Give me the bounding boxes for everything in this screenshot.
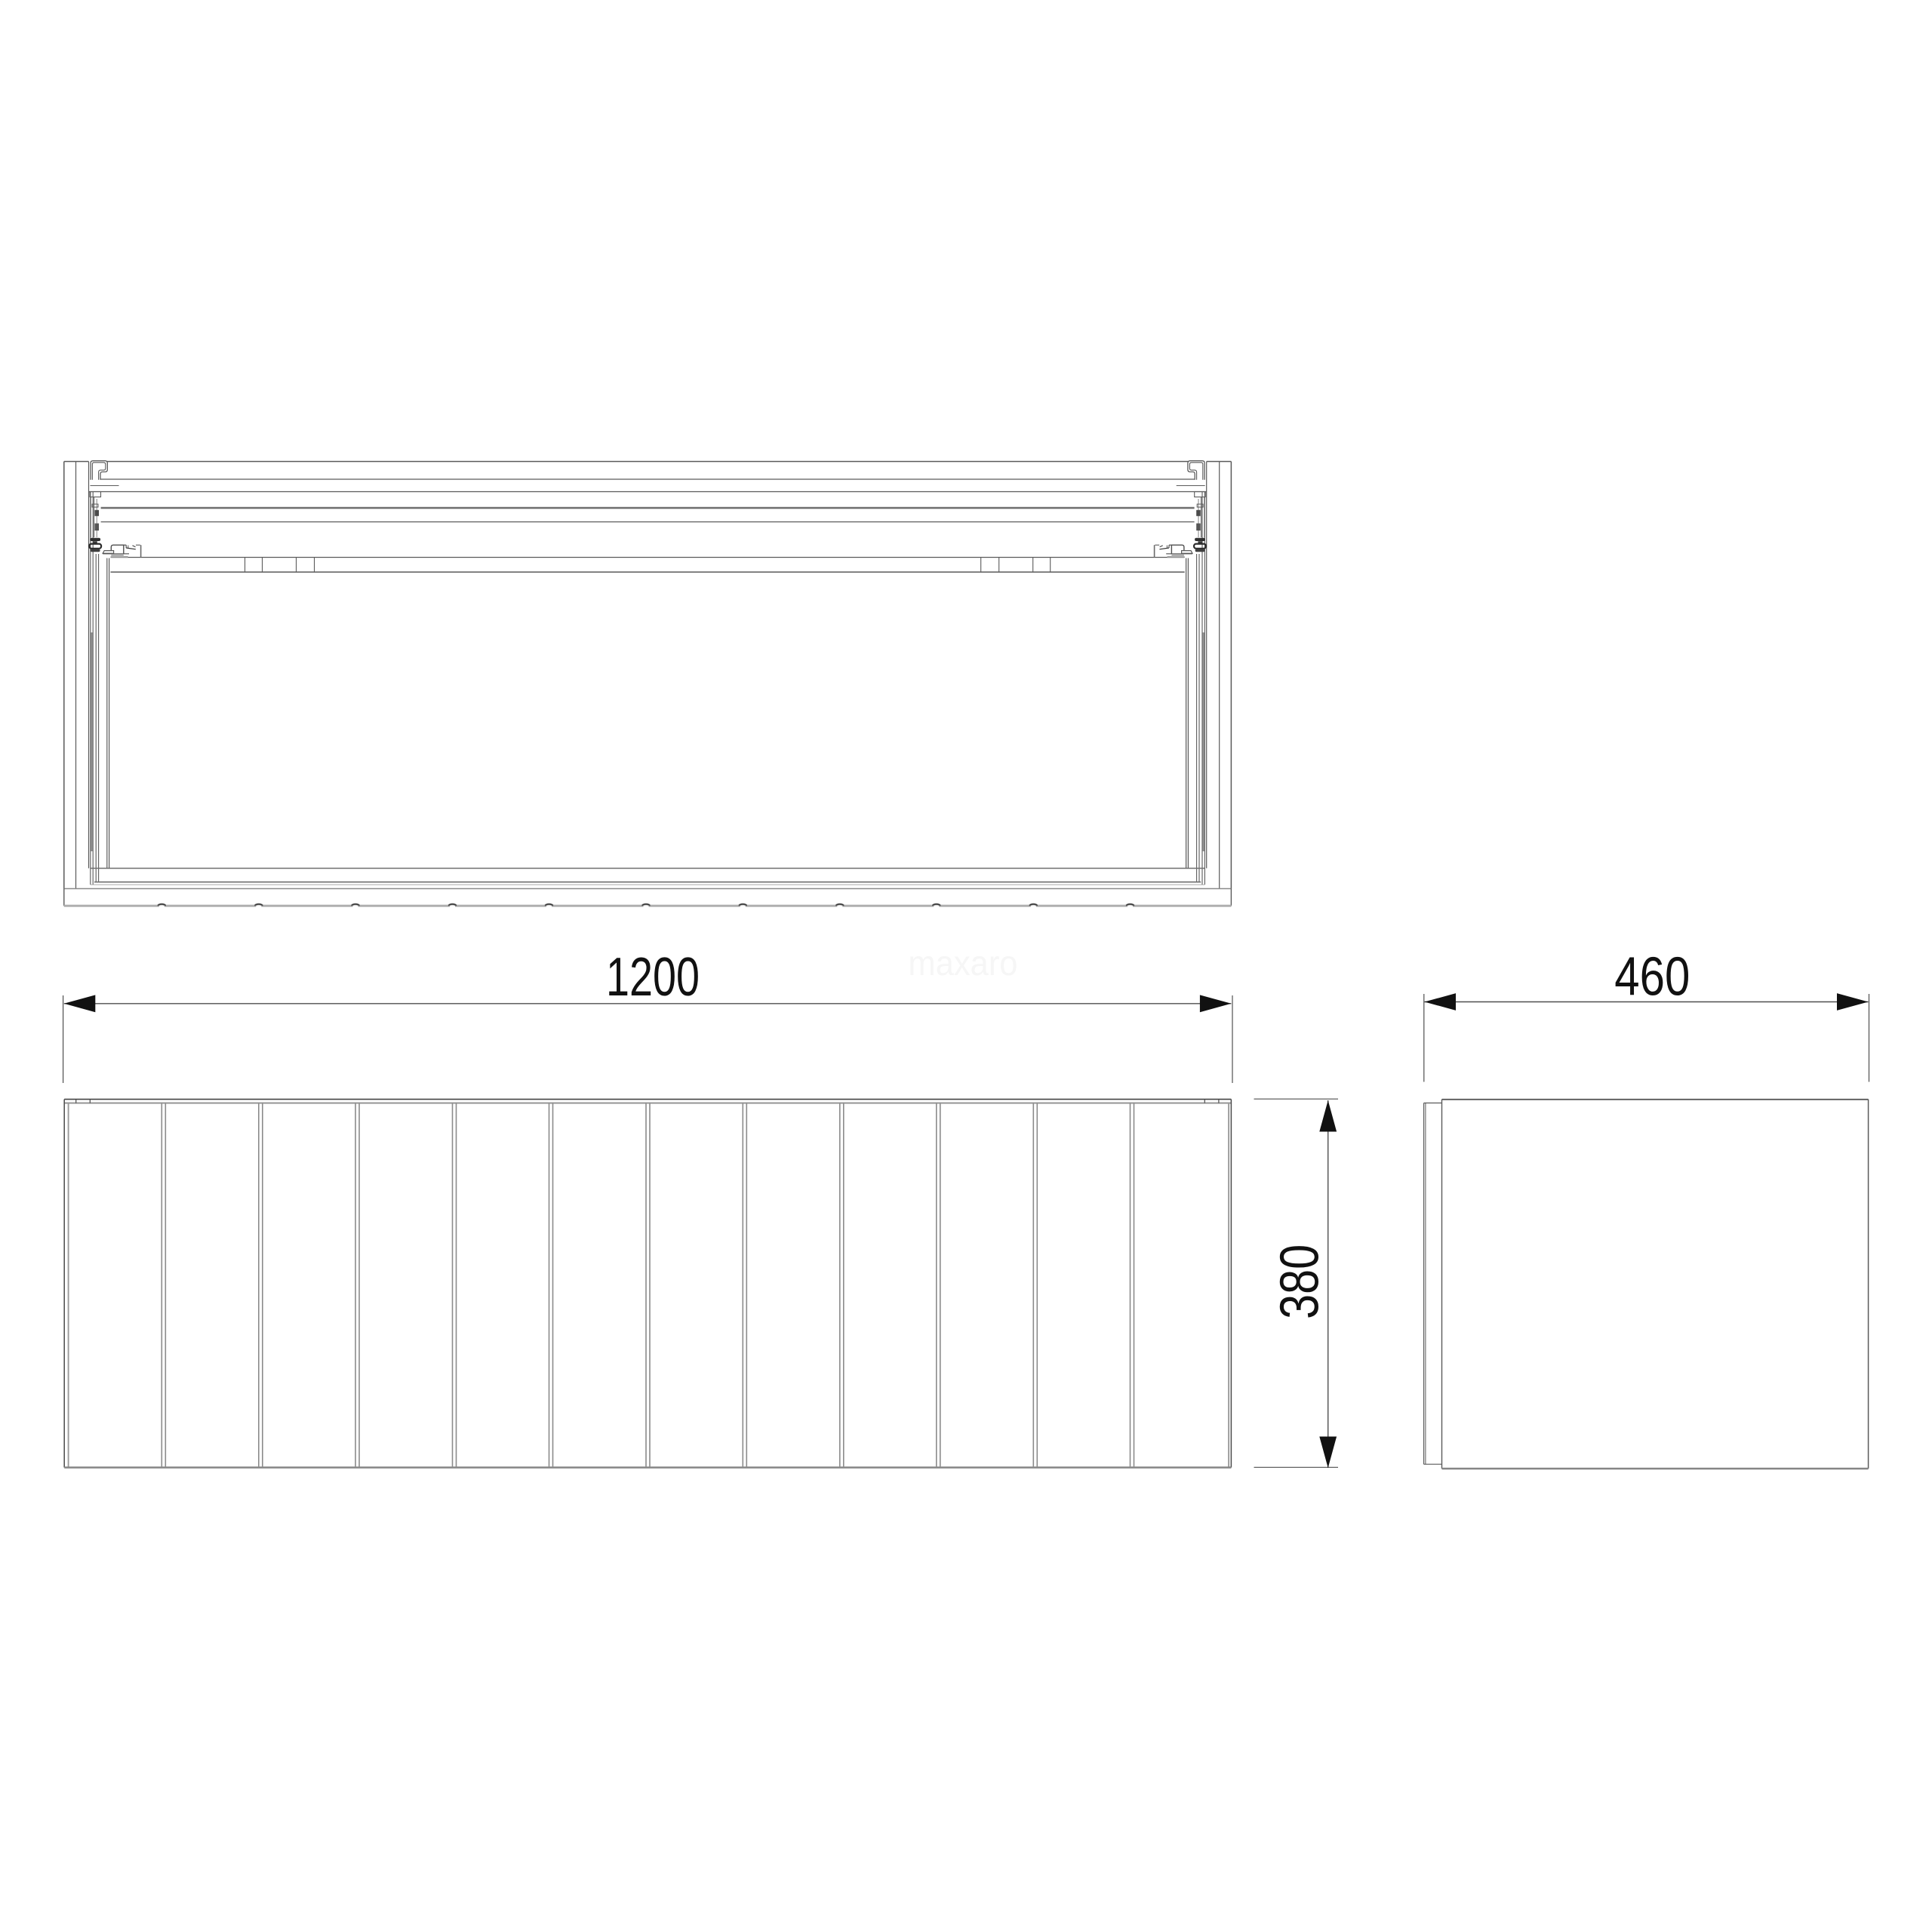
svg-text:460: 460 — [1614, 947, 1690, 1008]
svg-text:380: 380 — [1269, 1244, 1330, 1319]
svg-text:1200: 1200 — [606, 947, 700, 1008]
svg-text:maxaro: maxaro — [909, 943, 1018, 983]
